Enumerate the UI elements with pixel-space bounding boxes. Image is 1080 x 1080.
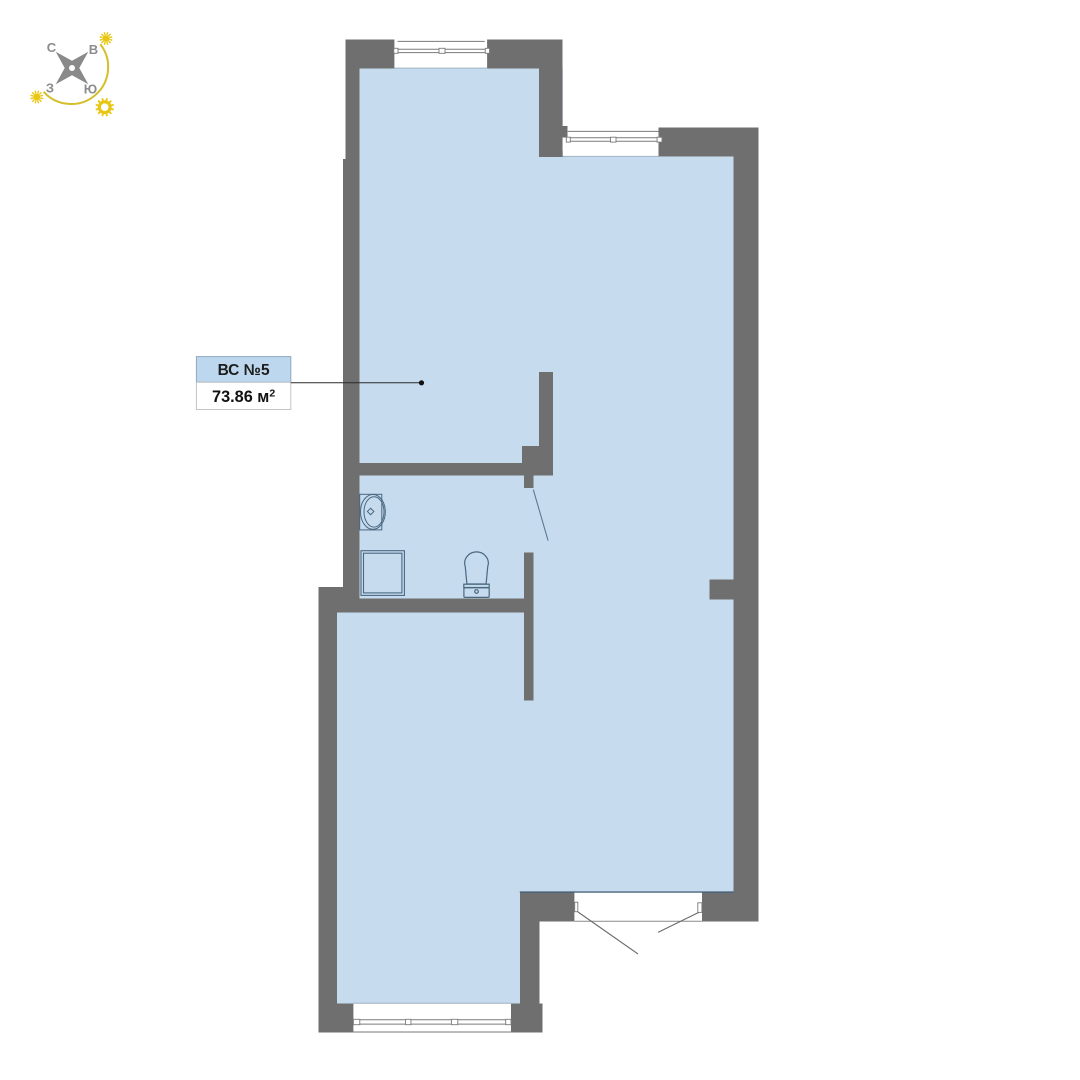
svg-text:ВС №5: ВС №5	[218, 362, 270, 379]
svg-text:В: В	[89, 42, 98, 57]
svg-text:З: З	[46, 81, 54, 96]
svg-text:73.86 м2: 73.86 м2	[212, 388, 275, 406]
svg-text:Ю: Ю	[84, 82, 97, 97]
svg-text:С: С	[47, 40, 57, 55]
